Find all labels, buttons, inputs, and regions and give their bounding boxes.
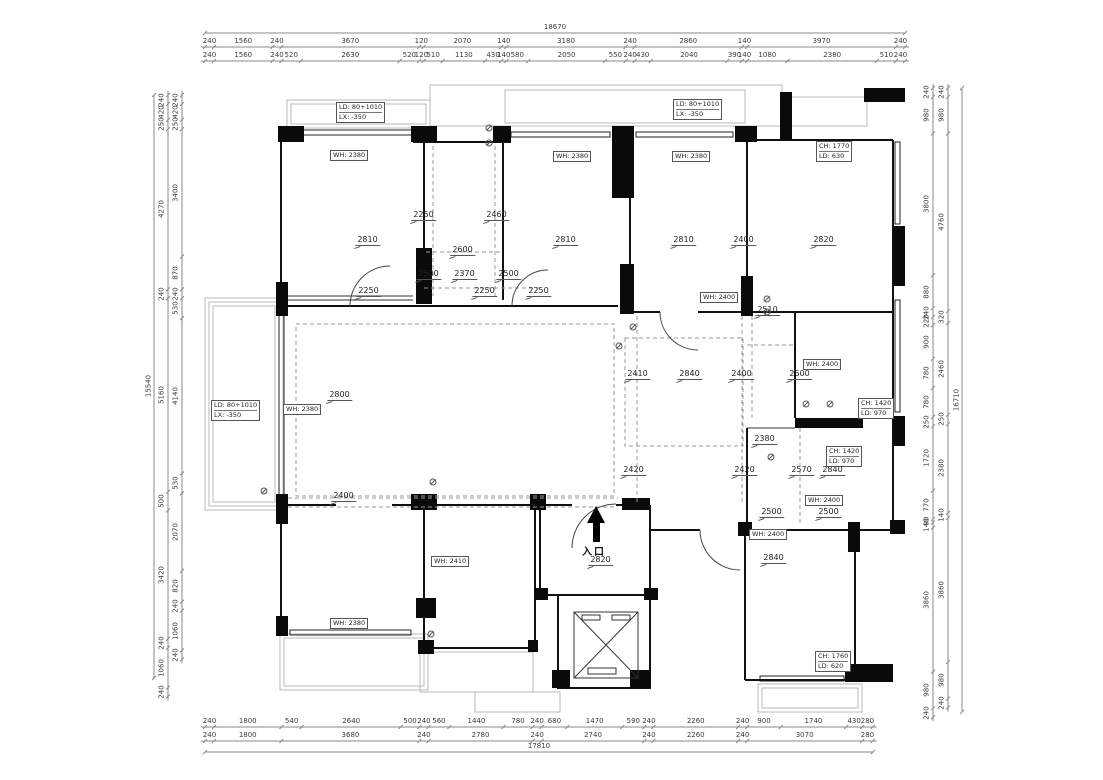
dim-value: 1060	[158, 659, 167, 677]
dim-overall-top: 18670	[544, 23, 566, 32]
switch-icon	[764, 296, 771, 303]
room-annotation-label: WH: 2380	[672, 151, 710, 162]
dim-value: 240	[938, 696, 947, 709]
dim-value: 510	[426, 51, 439, 60]
room-annotation-label: WH: 2380	[330, 618, 368, 629]
dim-value: 5160	[158, 386, 167, 404]
room-annotation-label: LD: 80+1010LX: -350	[673, 99, 722, 120]
dim-value: 2040	[680, 51, 698, 60]
level-dimension: 2250	[472, 286, 497, 297]
dim-value: 980	[938, 674, 947, 687]
dim-value: 240	[642, 731, 655, 740]
dim-value: 880	[923, 285, 932, 298]
dim-value: 500	[158, 494, 167, 507]
dim-value: 240	[203, 37, 216, 46]
dim-value: 980	[938, 109, 947, 122]
level-dimension: 2600	[450, 245, 475, 256]
dim-value: 250	[923, 415, 932, 428]
dim-value: 2260	[687, 717, 705, 726]
dim-value: 280	[861, 717, 874, 726]
dim-value: 240	[417, 717, 430, 726]
room-annotation-label: WH: 2380	[330, 150, 368, 161]
level-dimension: 2500	[759, 507, 784, 518]
dim-value: 240	[172, 93, 181, 106]
switch-icon	[768, 454, 775, 461]
room-annotation-label: WH: 2400	[803, 359, 841, 370]
dim-value: 250	[158, 118, 167, 131]
dim-value: 780	[923, 367, 932, 380]
dim-value: 980	[923, 109, 932, 122]
room-annotation-label: CH: 1420LD: 970	[826, 446, 862, 467]
dim-value: 3400	[172, 184, 181, 202]
dim-value: 820	[172, 580, 181, 593]
dim-value: 590	[627, 717, 640, 726]
switch-icon	[803, 401, 810, 408]
level-dimension: 2400	[731, 235, 756, 246]
dim-value: 3860	[938, 581, 947, 599]
switch-icon	[428, 631, 435, 638]
level-dimension: 2500	[816, 507, 841, 518]
dim-value: 240	[894, 51, 907, 60]
dim-value: 770	[923, 498, 932, 511]
room-annotation-label: CH: 1760LD: 620	[815, 651, 851, 672]
level-dimension: 2250	[356, 286, 381, 297]
dim-value: 2780	[472, 731, 490, 740]
dim-value: 250	[938, 413, 947, 426]
dim-value: 120	[415, 37, 428, 46]
dim-value: 1560	[234, 51, 252, 60]
dim-value: 240	[623, 37, 636, 46]
dim-value: 2630	[341, 51, 359, 60]
level-dimension: 2250	[411, 210, 436, 221]
dim-value: 530	[172, 477, 181, 490]
dim-value: 140	[738, 37, 751, 46]
dim-value: 320	[938, 310, 947, 323]
dim-value: 4760	[938, 213, 947, 231]
dim-value: 540	[285, 717, 298, 726]
dim-value: 3800	[923, 195, 932, 213]
dim-value: 510	[880, 51, 893, 60]
dim-value: 580	[511, 51, 524, 60]
dim-overall-left: 15540	[145, 375, 154, 397]
dim-value: 240	[172, 287, 181, 300]
dim-value: 240	[158, 93, 167, 106]
dim-value: 1740	[805, 717, 823, 726]
dim-value: 3860	[923, 591, 932, 609]
dim-value: 140	[497, 37, 510, 46]
dim-value: 240	[203, 51, 216, 60]
switch-icon	[430, 479, 437, 486]
dim-value: 240	[530, 731, 543, 740]
dim-value: 280	[861, 731, 874, 740]
level-dimension: 2840	[677, 369, 702, 380]
dim-value: 2740	[584, 731, 602, 740]
level-dimension: 2420	[732, 465, 757, 476]
dim-value: 1800	[239, 717, 257, 726]
level-dimension: 2800	[327, 390, 352, 401]
dim-value: 240	[172, 599, 181, 612]
level-dimension: 2500	[416, 269, 441, 280]
dim-value: 2460	[938, 360, 947, 378]
room-annotation-label: LD: 80+1010LX: -350	[336, 102, 385, 123]
dim-value: 250	[172, 118, 181, 131]
thin-walls	[288, 296, 795, 428]
dim-value: 2380	[938, 460, 947, 478]
dim-value: 1470	[586, 717, 604, 726]
dim-overall-bottom: 17810	[528, 742, 550, 751]
dim-value: 2380	[823, 51, 841, 60]
room-annotation-label: WH: 2400	[749, 529, 787, 540]
dim-value: 2260	[687, 731, 705, 740]
dim-value: 2860	[679, 37, 697, 46]
dim-value: 530	[172, 302, 181, 315]
dim-value: 980	[923, 683, 932, 696]
dim-value: 240	[203, 731, 216, 740]
switch-icon	[630, 324, 637, 331]
room-annotation-label: CH: 1770LD: 630	[816, 141, 852, 162]
dim-value: 240	[270, 37, 283, 46]
dim-value: 140	[738, 51, 751, 60]
room-annotation-label: WH: 2380	[283, 404, 321, 415]
dim-value: 1060	[172, 622, 181, 640]
dim-value: 780	[923, 396, 932, 409]
level-dimension: 2570	[789, 465, 814, 476]
dim-value: 2070	[172, 523, 181, 541]
dim-value: 1720	[923, 449, 932, 467]
switch-icon	[486, 140, 493, 147]
dim-value: 2070	[453, 37, 471, 46]
dim-value: 680	[548, 717, 561, 726]
room-annotation-label: WH: 2400	[805, 495, 843, 506]
room-annotation-label: CH: 1420LD: 970	[858, 398, 894, 419]
dim-value: 430	[636, 51, 649, 60]
dim-value: 240	[158, 287, 167, 300]
dim-value: 430	[847, 717, 860, 726]
level-dimension: 2840	[761, 553, 786, 564]
dim-value: 3970	[813, 37, 831, 46]
level-dimension: 2410	[625, 369, 650, 380]
level-dimension: 2820	[811, 235, 836, 246]
room-annotation-label: LD: 80+1010LX: -350	[211, 400, 260, 421]
level-dimension: 2600	[787, 369, 812, 380]
dim-value: 1080	[758, 51, 776, 60]
dim-value: 780	[511, 717, 524, 726]
dim-value: 140	[923, 518, 932, 531]
door-arcs	[350, 266, 740, 570]
level-dimension: 2370	[452, 269, 477, 280]
room-annotation-label: WH: 2400	[700, 292, 738, 303]
room-annotation-label: WH: 2380	[553, 151, 591, 162]
dim-value: 3420	[158, 566, 167, 584]
dim-value: 520	[285, 51, 298, 60]
dim-value: 2640	[342, 717, 360, 726]
switch-icon	[486, 125, 493, 132]
dim-value: 240	[623, 51, 636, 60]
dim-value: 240	[923, 86, 932, 99]
structural-columns	[276, 88, 905, 688]
switch-icon	[261, 488, 268, 495]
dim-value: 140	[938, 509, 947, 522]
dim-value: 240	[938, 86, 947, 99]
dim-value: 220	[923, 314, 932, 327]
dim-value: 240	[736, 717, 749, 726]
dim-value: 560	[432, 717, 445, 726]
dim-value: 1800	[239, 731, 257, 740]
dim-value: 3070	[796, 731, 814, 740]
level-dimension: 2400	[331, 491, 356, 502]
level-dimension: 2400	[729, 369, 754, 380]
level-dimension: 2820	[588, 555, 613, 566]
dim-value: 1560	[234, 37, 252, 46]
dim-value: 1130	[455, 51, 473, 60]
level-dimension: 2810	[671, 235, 696, 246]
dim-value: 140	[497, 51, 510, 60]
level-dimension: 2810	[355, 235, 380, 246]
dim-value: 240	[894, 37, 907, 46]
dim-value: 3670	[341, 37, 359, 46]
walls	[281, 130, 893, 688]
dim-value: 240	[203, 717, 216, 726]
dim-overall-right: 16710	[953, 389, 962, 411]
up-arrow-icon	[587, 506, 605, 542]
elevator-shaft	[574, 612, 638, 678]
dim-value: 240	[530, 717, 543, 726]
level-dimension: 2250	[526, 286, 551, 297]
dashed-lines	[288, 146, 800, 525]
dim-value: 1440	[468, 717, 486, 726]
dim-value: 2050	[558, 51, 576, 60]
dim-value: 870	[172, 266, 181, 279]
dim-value: 240	[923, 706, 932, 719]
floor-plan-canvas: 18670 17810 15540 16710 入口 2401560240367…	[0, 0, 1103, 780]
switch-icon	[764, 309, 771, 316]
dim-value: 500	[403, 717, 416, 726]
switch-icon	[616, 343, 623, 350]
level-dimension: 2810	[553, 235, 578, 246]
dim-value: 3680	[342, 731, 360, 740]
dim-value: 240	[158, 637, 167, 650]
switch-icon	[827, 401, 834, 408]
dim-value: 240	[642, 717, 655, 726]
dim-value: 240	[417, 731, 430, 740]
level-dimension: 2420	[621, 465, 646, 476]
dim-value: 4140	[172, 387, 181, 405]
dim-value: 900	[757, 717, 770, 726]
dim-value: 900	[923, 335, 932, 348]
level-dimension: 2380	[752, 434, 777, 445]
dim-value: 240	[172, 648, 181, 661]
dim-value: 240	[270, 51, 283, 60]
room-annotation-label: WH: 2410	[431, 556, 469, 567]
dim-value: 3180	[557, 37, 575, 46]
level-dimension: 2500	[496, 269, 521, 280]
level-dimension: 2460	[484, 210, 509, 221]
dim-value: 240	[158, 685, 167, 698]
dim-value: 4270	[158, 200, 167, 218]
dim-value: 550	[609, 51, 622, 60]
dim-value: 240	[736, 731, 749, 740]
